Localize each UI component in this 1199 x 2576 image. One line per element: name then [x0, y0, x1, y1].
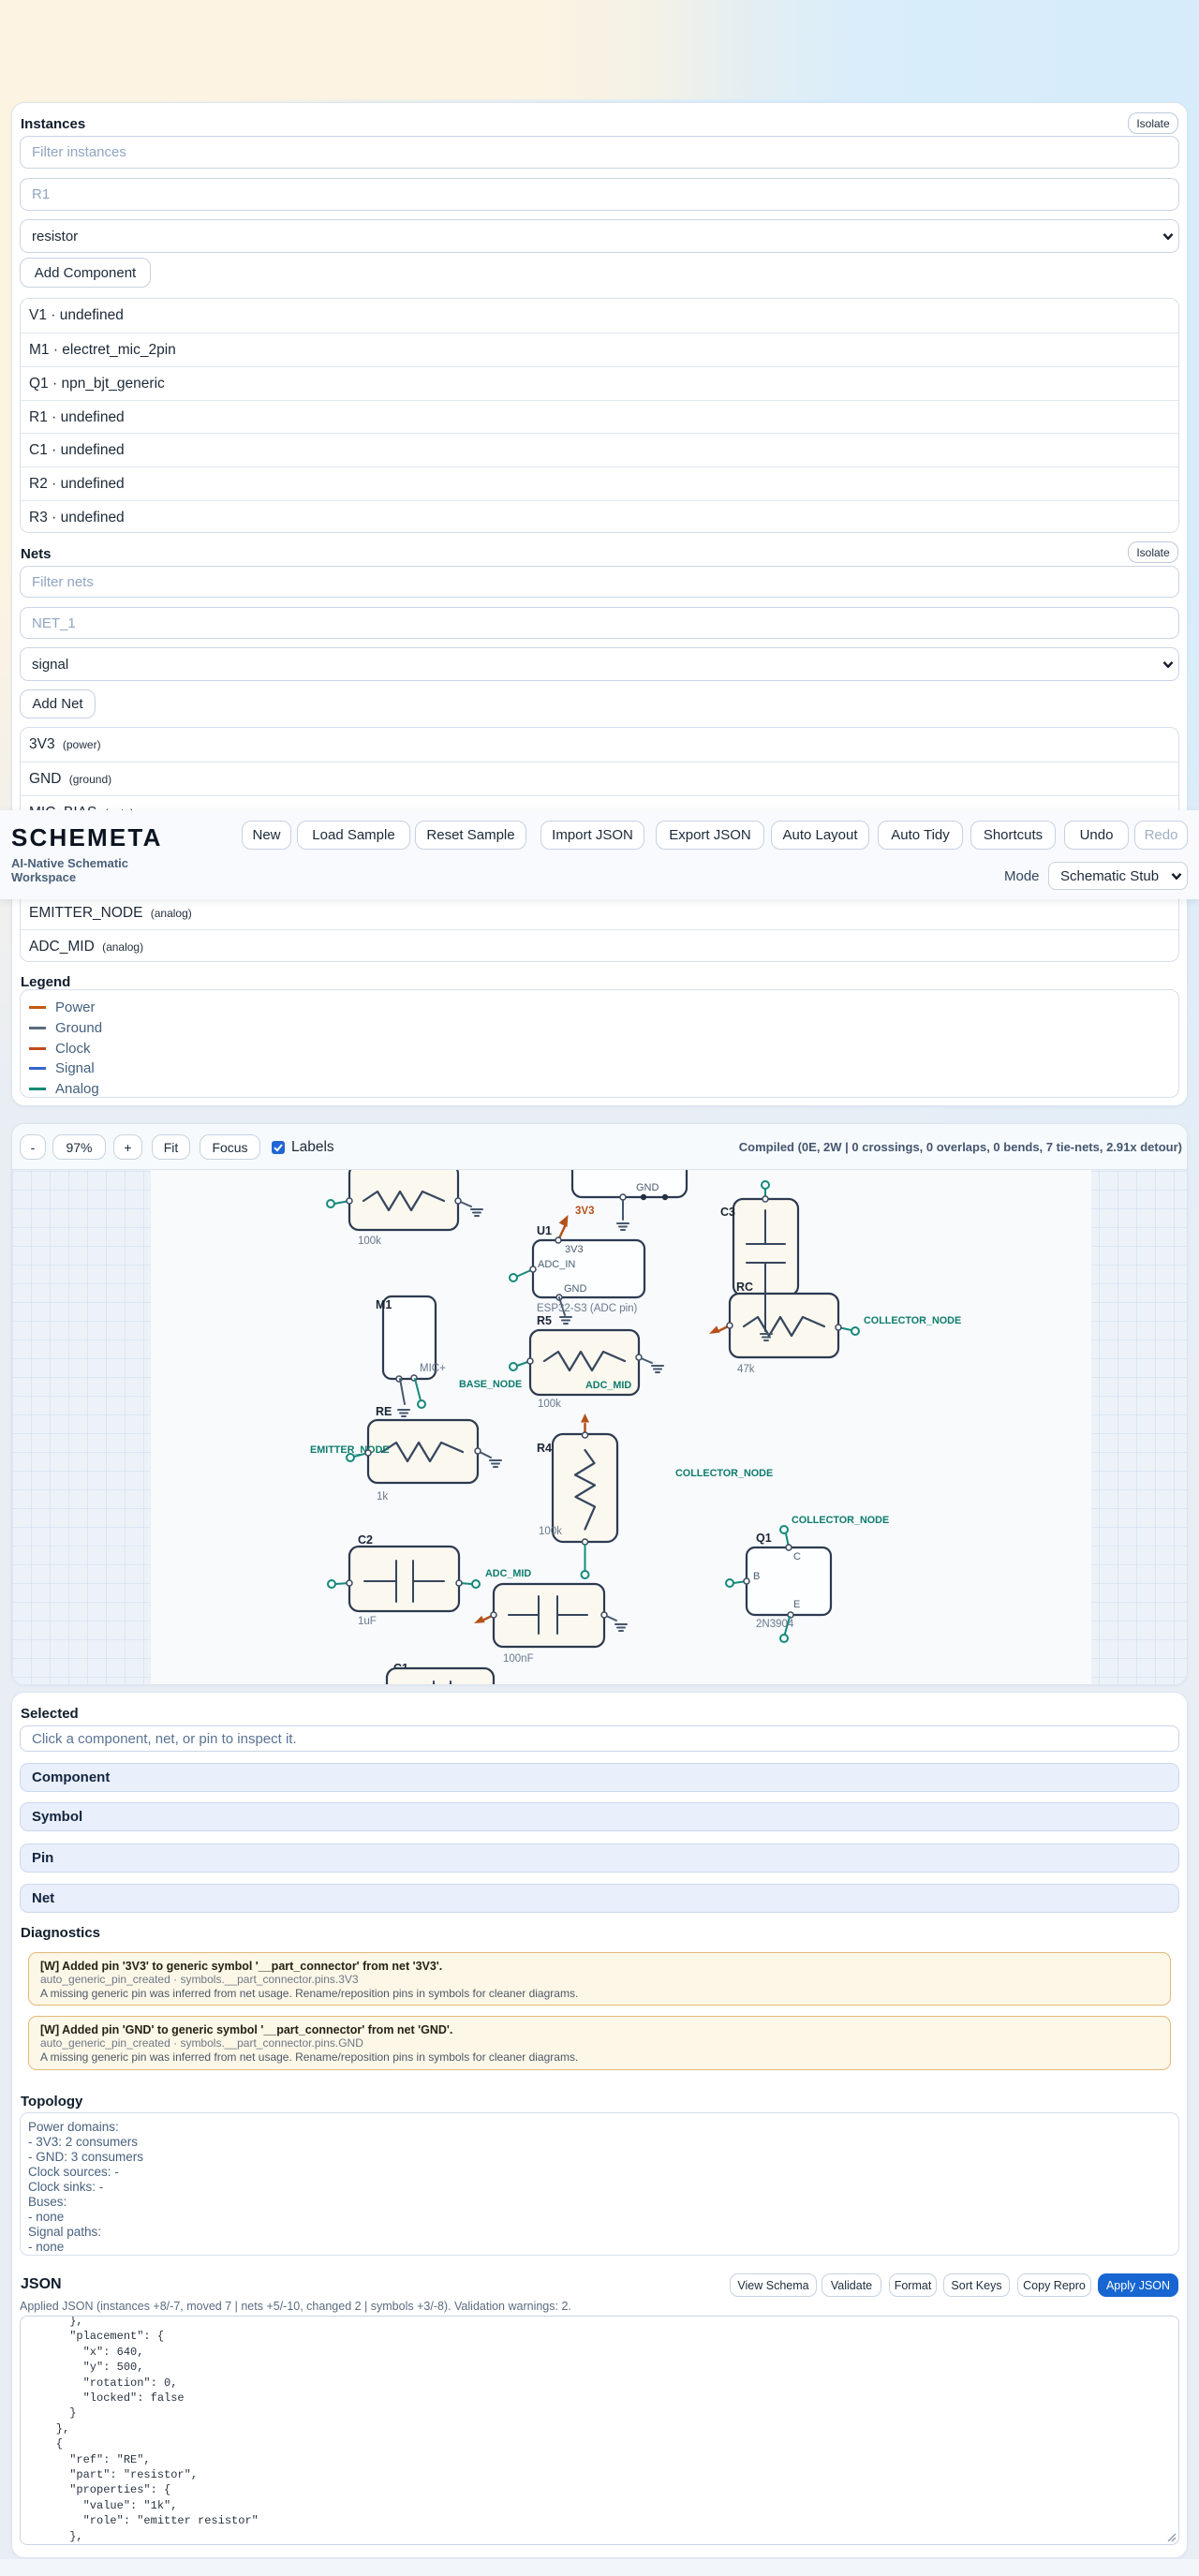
svg-text:100k: 100k — [538, 1399, 561, 1410]
svg-text:ADC_MID: ADC_MID — [485, 1568, 531, 1579]
svg-text:100nF: 100nF — [503, 1653, 534, 1665]
svg-text:100k: 100k — [539, 1526, 562, 1537]
svg-text:100k: 100k — [358, 1236, 381, 1247]
svg-text:ADC_IN: ADC_IN — [538, 1259, 575, 1270]
svg-text:COLLECTOR_NODE: COLLECTOR_NODE — [675, 1468, 773, 1479]
svg-text:COLLECTOR_NODE: COLLECTOR_NODE — [864, 1315, 961, 1326]
svg-text:1uF: 1uF — [358, 1616, 377, 1627]
svg-text:GND: GND — [636, 1182, 659, 1193]
svg-text:3V3: 3V3 — [575, 1206, 594, 1217]
svg-text:C2: C2 — [358, 1533, 373, 1547]
svg-text:R5: R5 — [537, 1314, 552, 1327]
svg-text:E: E — [793, 1599, 800, 1610]
svg-text:Q1: Q1 — [756, 1532, 772, 1545]
svg-text:M1: M1 — [376, 1298, 392, 1311]
svg-text:C3: C3 — [720, 1206, 735, 1219]
svg-text:ADC_MID: ADC_MID — [585, 1380, 631, 1391]
svg-text:1k: 1k — [377, 1491, 388, 1503]
svg-text:C: C — [793, 1551, 801, 1562]
svg-text:B: B — [753, 1571, 760, 1582]
svg-text:R4: R4 — [537, 1442, 552, 1455]
svg-text:2N3904: 2N3904 — [756, 1619, 794, 1630]
svg-text:U1: U1 — [537, 1224, 552, 1237]
svg-text:RE: RE — [376, 1405, 392, 1418]
svg-text:ESP32-S3 (ADC pin): ESP32-S3 (ADC pin) — [537, 1303, 638, 1314]
svg-text:RC: RC — [736, 1281, 753, 1294]
svg-text:3V3: 3V3 — [565, 1244, 584, 1255]
svg-text:MIC+: MIC+ — [420, 1363, 446, 1374]
svg-text:GND: GND — [564, 1283, 587, 1295]
svg-text:47k: 47k — [737, 1364, 755, 1375]
svg-text:BASE_NODE: BASE_NODE — [459, 1379, 522, 1390]
svg-text:COLLECTOR_NODE: COLLECTOR_NODE — [792, 1515, 889, 1526]
